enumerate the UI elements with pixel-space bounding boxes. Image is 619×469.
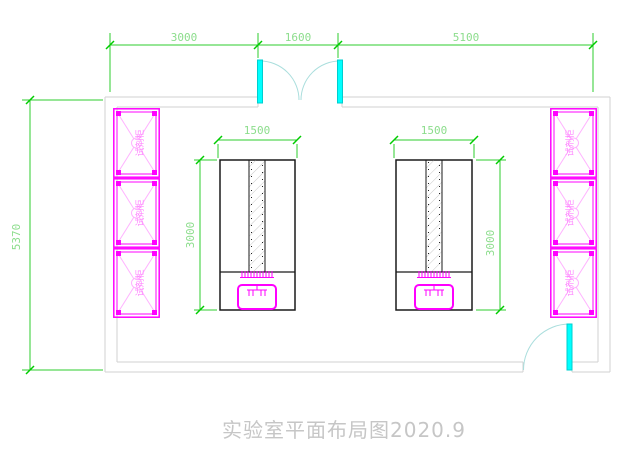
cabinet-label: 试剂柜 (136, 196, 146, 230)
right-bench (396, 160, 472, 310)
door-swing-arc (260, 61, 299, 100)
top-double-door (258, 60, 343, 103)
cabinet-label: 试剂柜 (566, 196, 576, 230)
left-dimension-lines (22, 96, 103, 374)
door-leaf (338, 60, 343, 103)
door-swing-arc (524, 324, 570, 370)
room-walls (105, 97, 610, 372)
bottom-right-door (524, 324, 573, 370)
door-leaf (567, 324, 572, 370)
dimension-label-right-bench-depth: 3000 (485, 223, 497, 263)
door-leaf (258, 60, 263, 103)
left-bench (220, 160, 295, 310)
cabinet-label: 试剂柜 (566, 126, 576, 160)
dimension-label-left-bench-width: 1500 (237, 125, 277, 137)
floorplan-canvas (0, 0, 619, 469)
dimension-label-left-wall: 5370 (11, 217, 23, 257)
dimension-label-top-right: 5100 (446, 32, 486, 44)
dimension-label-left-bench-depth: 3000 (185, 215, 197, 255)
cad-floorplan-drawing: 3000 1600 5100 5370 1500 1500 3000 3000 … (0, 0, 619, 469)
drawing-title: 实验室平面布局图2020.9 (222, 416, 466, 444)
cabinet-label: 试剂柜 (136, 126, 146, 160)
dimension-label-top-middle: 1600 (278, 32, 318, 44)
dimension-label-right-bench-width: 1500 (414, 125, 454, 137)
dimension-label-top-left: 3000 (164, 32, 204, 44)
cabinet-label: 试剂柜 (136, 266, 146, 300)
cabinet-label: 试剂柜 (566, 266, 576, 300)
door-swing-arc (301, 61, 340, 100)
